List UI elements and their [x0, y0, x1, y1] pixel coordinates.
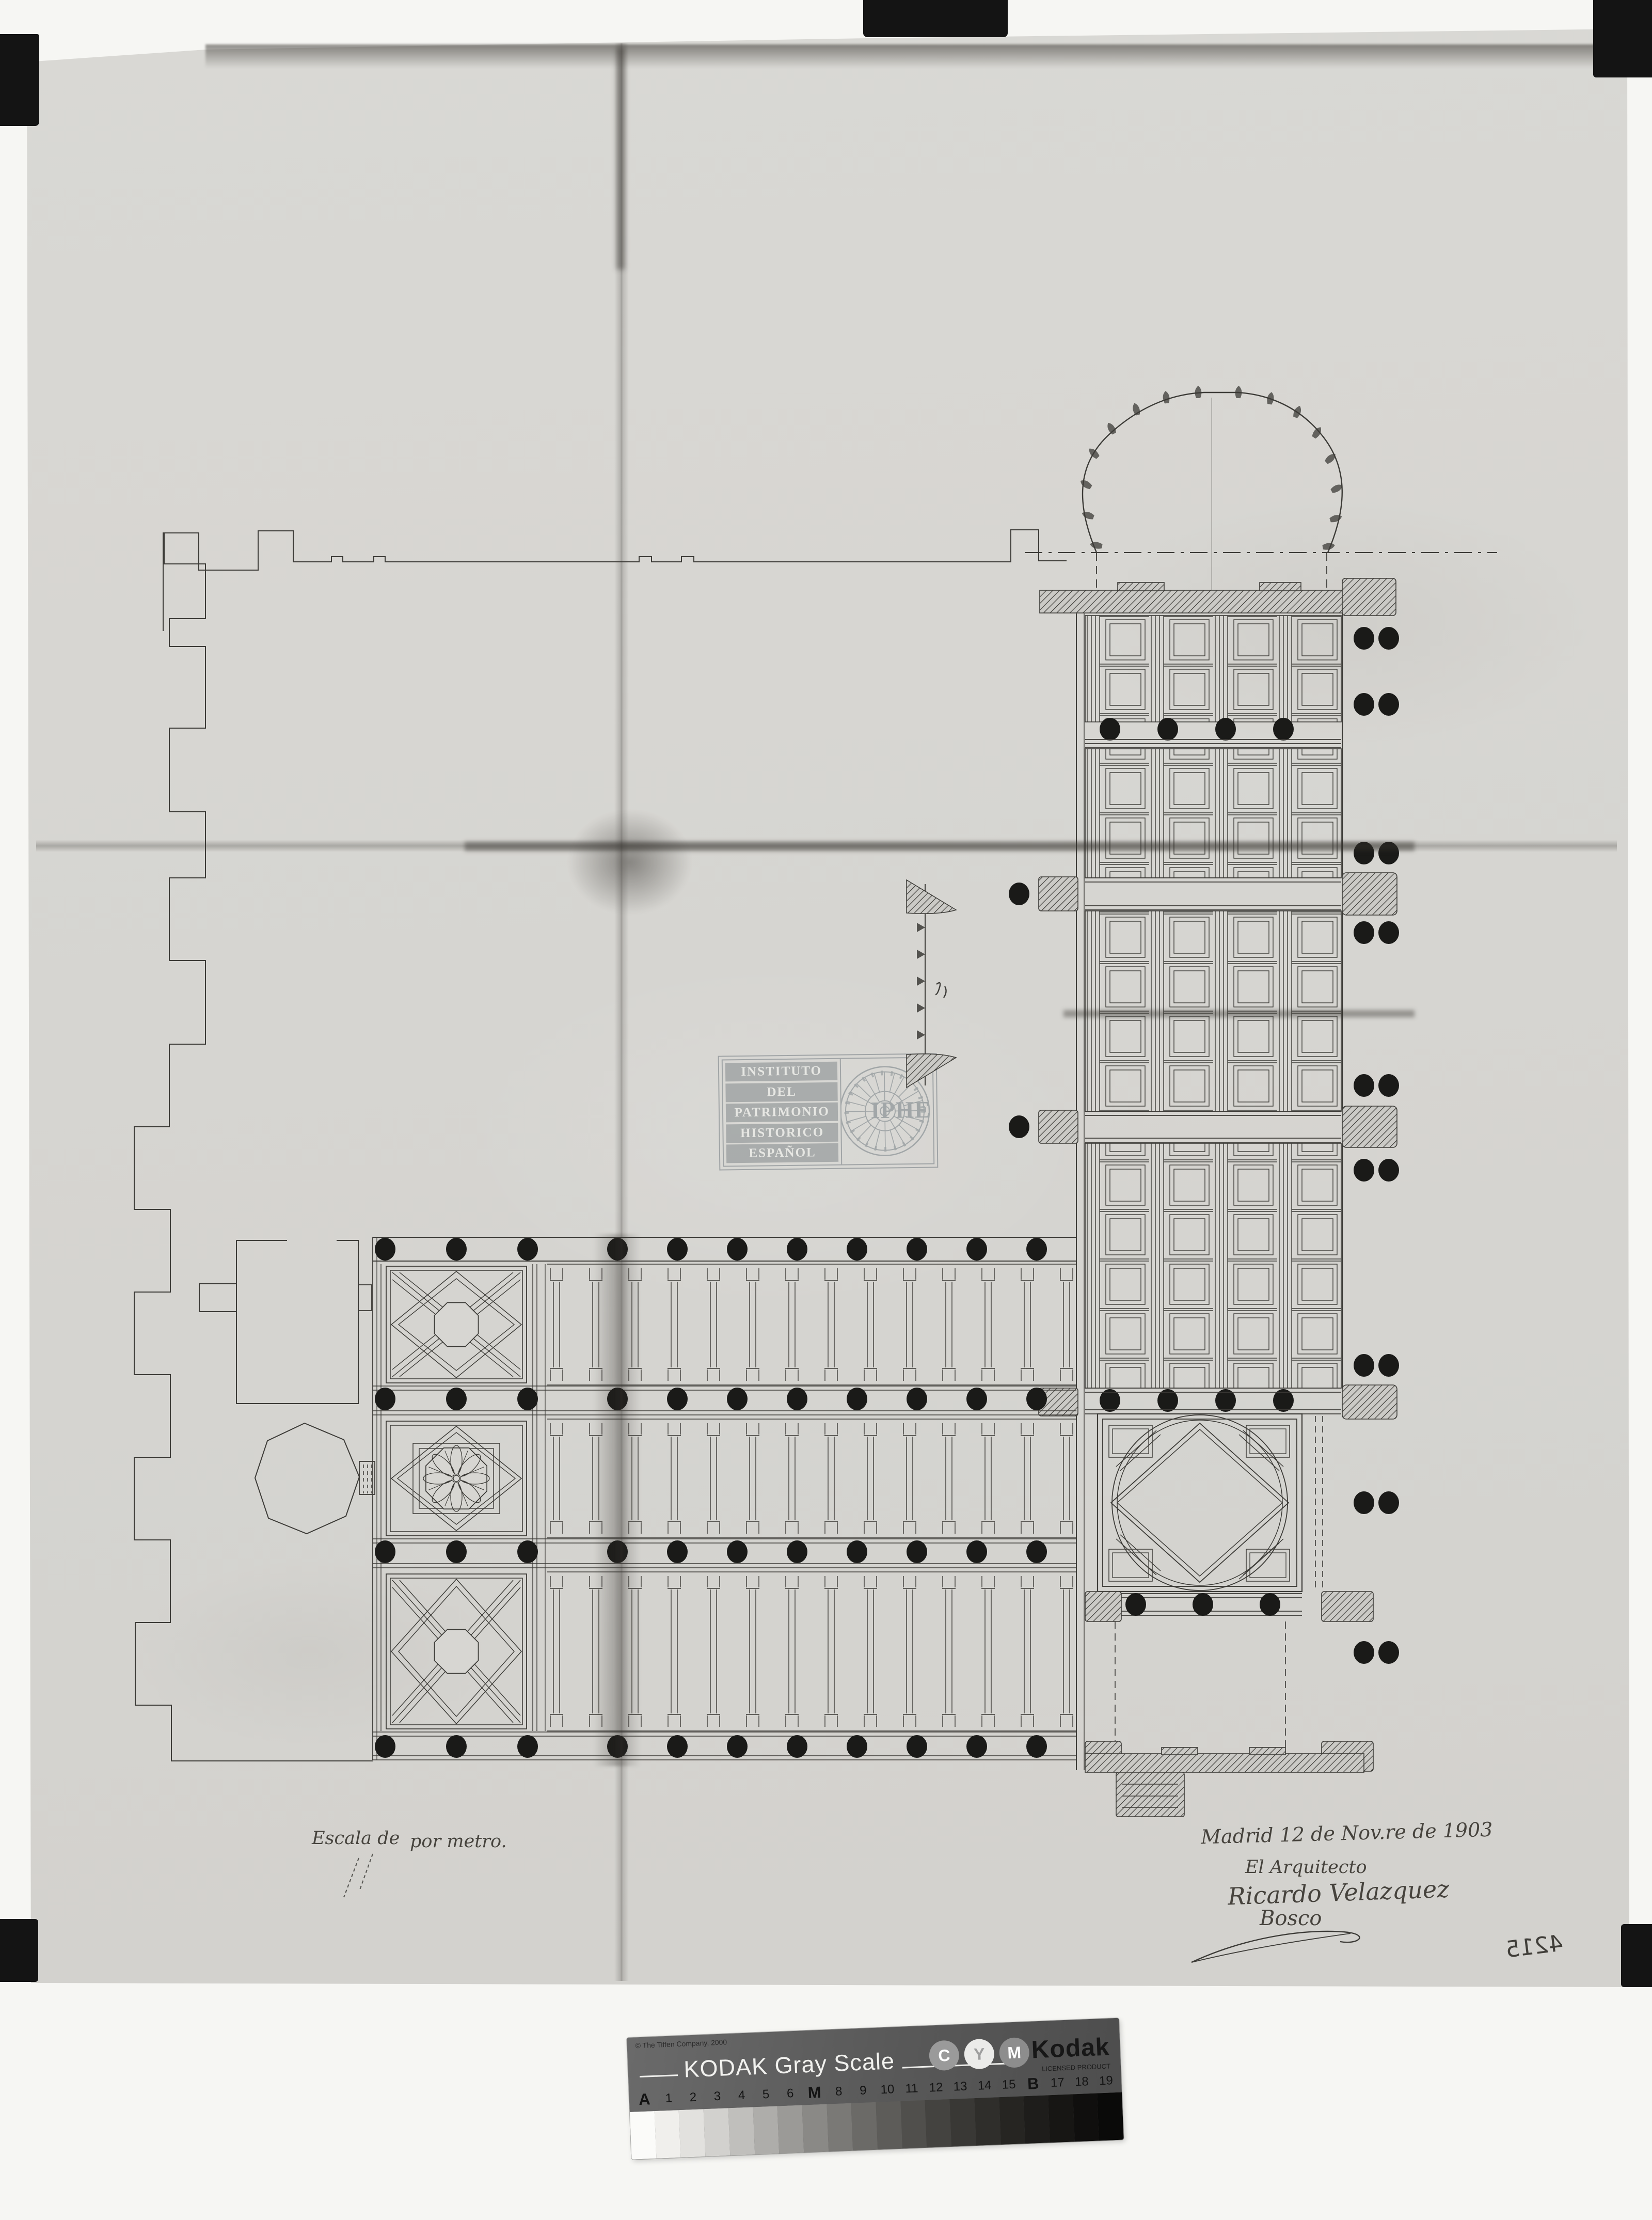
- registration-tape: [0, 1919, 38, 1982]
- gray-scale-label: 12: [924, 2080, 948, 2096]
- decorative-line: [640, 2074, 678, 2077]
- gray-scale-label: 2: [680, 2090, 705, 2105]
- gray-scale-label: 11: [899, 2081, 924, 2097]
- gray-patch: [777, 2105, 804, 2153]
- gray-patch: [728, 2107, 754, 2155]
- gray-patch: [1097, 2092, 1123, 2141]
- gray-scale-label: 9: [851, 2083, 876, 2099]
- site-boundary-walls: [134, 530, 1067, 1761]
- registration-tape: [0, 34, 39, 126]
- gray-patch: [704, 2108, 730, 2156]
- gray-patch: [1048, 2094, 1074, 2143]
- architect-title: El Arquitecto: [1245, 1857, 1367, 1878]
- gray-scale-label: M: [802, 2083, 828, 2103]
- gray-patch: [827, 2103, 853, 2152]
- gray-scale-label: 14: [972, 2078, 997, 2093]
- gray-patch: [679, 2109, 705, 2158]
- gray-patch: [949, 2098, 976, 2147]
- gray-patch: [1023, 2095, 1050, 2144]
- registration-tape: [1621, 1924, 1652, 1987]
- kodak-gray-scale-card: © The Tiffen Company, 2000 KODAK Gray Sc…: [627, 2018, 1124, 2160]
- gray-patch: [630, 2111, 656, 2160]
- gray-scale-label: A: [632, 2090, 657, 2109]
- gray-patch: [1073, 2093, 1099, 2142]
- kodak-logo: Kodak: [1031, 2033, 1110, 2064]
- cyan-badge: C: [929, 2040, 960, 2071]
- cmy-badges: C Y M: [929, 2037, 1030, 2071]
- gray-scale-label: 1: [656, 2091, 681, 2106]
- kodak-brand-block: Kodak LICENSED PRODUCT: [1031, 2033, 1110, 2073]
- gray-scale-label: 13: [948, 2079, 973, 2095]
- registration-tape: [1593, 0, 1652, 77]
- gray-scale-label: 17: [1045, 2075, 1070, 2091]
- side-portal: [907, 880, 956, 1088]
- gray-patch: [900, 2100, 927, 2149]
- south-arm: [1085, 1592, 1399, 1817]
- gray-scale-label: 4: [729, 2088, 754, 2103]
- nave-ceiling: [373, 1237, 1076, 1760]
- kodak-copyright: © The Tiffen Company, 2000: [635, 2038, 727, 2050]
- gray-patch: [876, 2101, 902, 2150]
- gray-scale-label: 10: [875, 2082, 900, 2098]
- apse: [1025, 386, 1497, 613]
- gray-patch: [654, 2110, 680, 2159]
- gray-patch: [851, 2102, 878, 2151]
- gray-scale-label: 8: [827, 2084, 851, 2100]
- gray-scale-label: 5: [754, 2087, 779, 2102]
- scale-note-unit: por metro.: [410, 1831, 507, 1852]
- yellow-badge: Y: [964, 2038, 995, 2069]
- gray-scale-label: 18: [1069, 2074, 1094, 2090]
- kodak-title: KODAK Gray Scale: [684, 2048, 895, 2083]
- gray-scale-label: B: [1021, 2074, 1046, 2094]
- signature-surname: Bosco: [1260, 1907, 1322, 1930]
- gray-patch: [999, 2096, 1025, 2145]
- registration-tape: [863, 0, 1008, 37]
- gray-patch: [925, 2099, 951, 2148]
- gray-patch: [974, 2097, 1000, 2146]
- west-annex: [199, 1240, 375, 1534]
- pen-marks: [344, 1854, 1359, 1962]
- crossing-bay: [1098, 1414, 1399, 1592]
- gray-patch: [802, 2104, 828, 2153]
- gray-scale-label: 6: [778, 2086, 803, 2101]
- magenta-badge: M: [999, 2037, 1030, 2068]
- gray-scale-label: 3: [705, 2089, 729, 2104]
- gray-scale-label: 19: [1093, 2073, 1118, 2089]
- gray-patch: [753, 2106, 779, 2154]
- scale-note: Escala de: [312, 1828, 400, 1849]
- gray-scale-label: 15: [996, 2077, 1021, 2092]
